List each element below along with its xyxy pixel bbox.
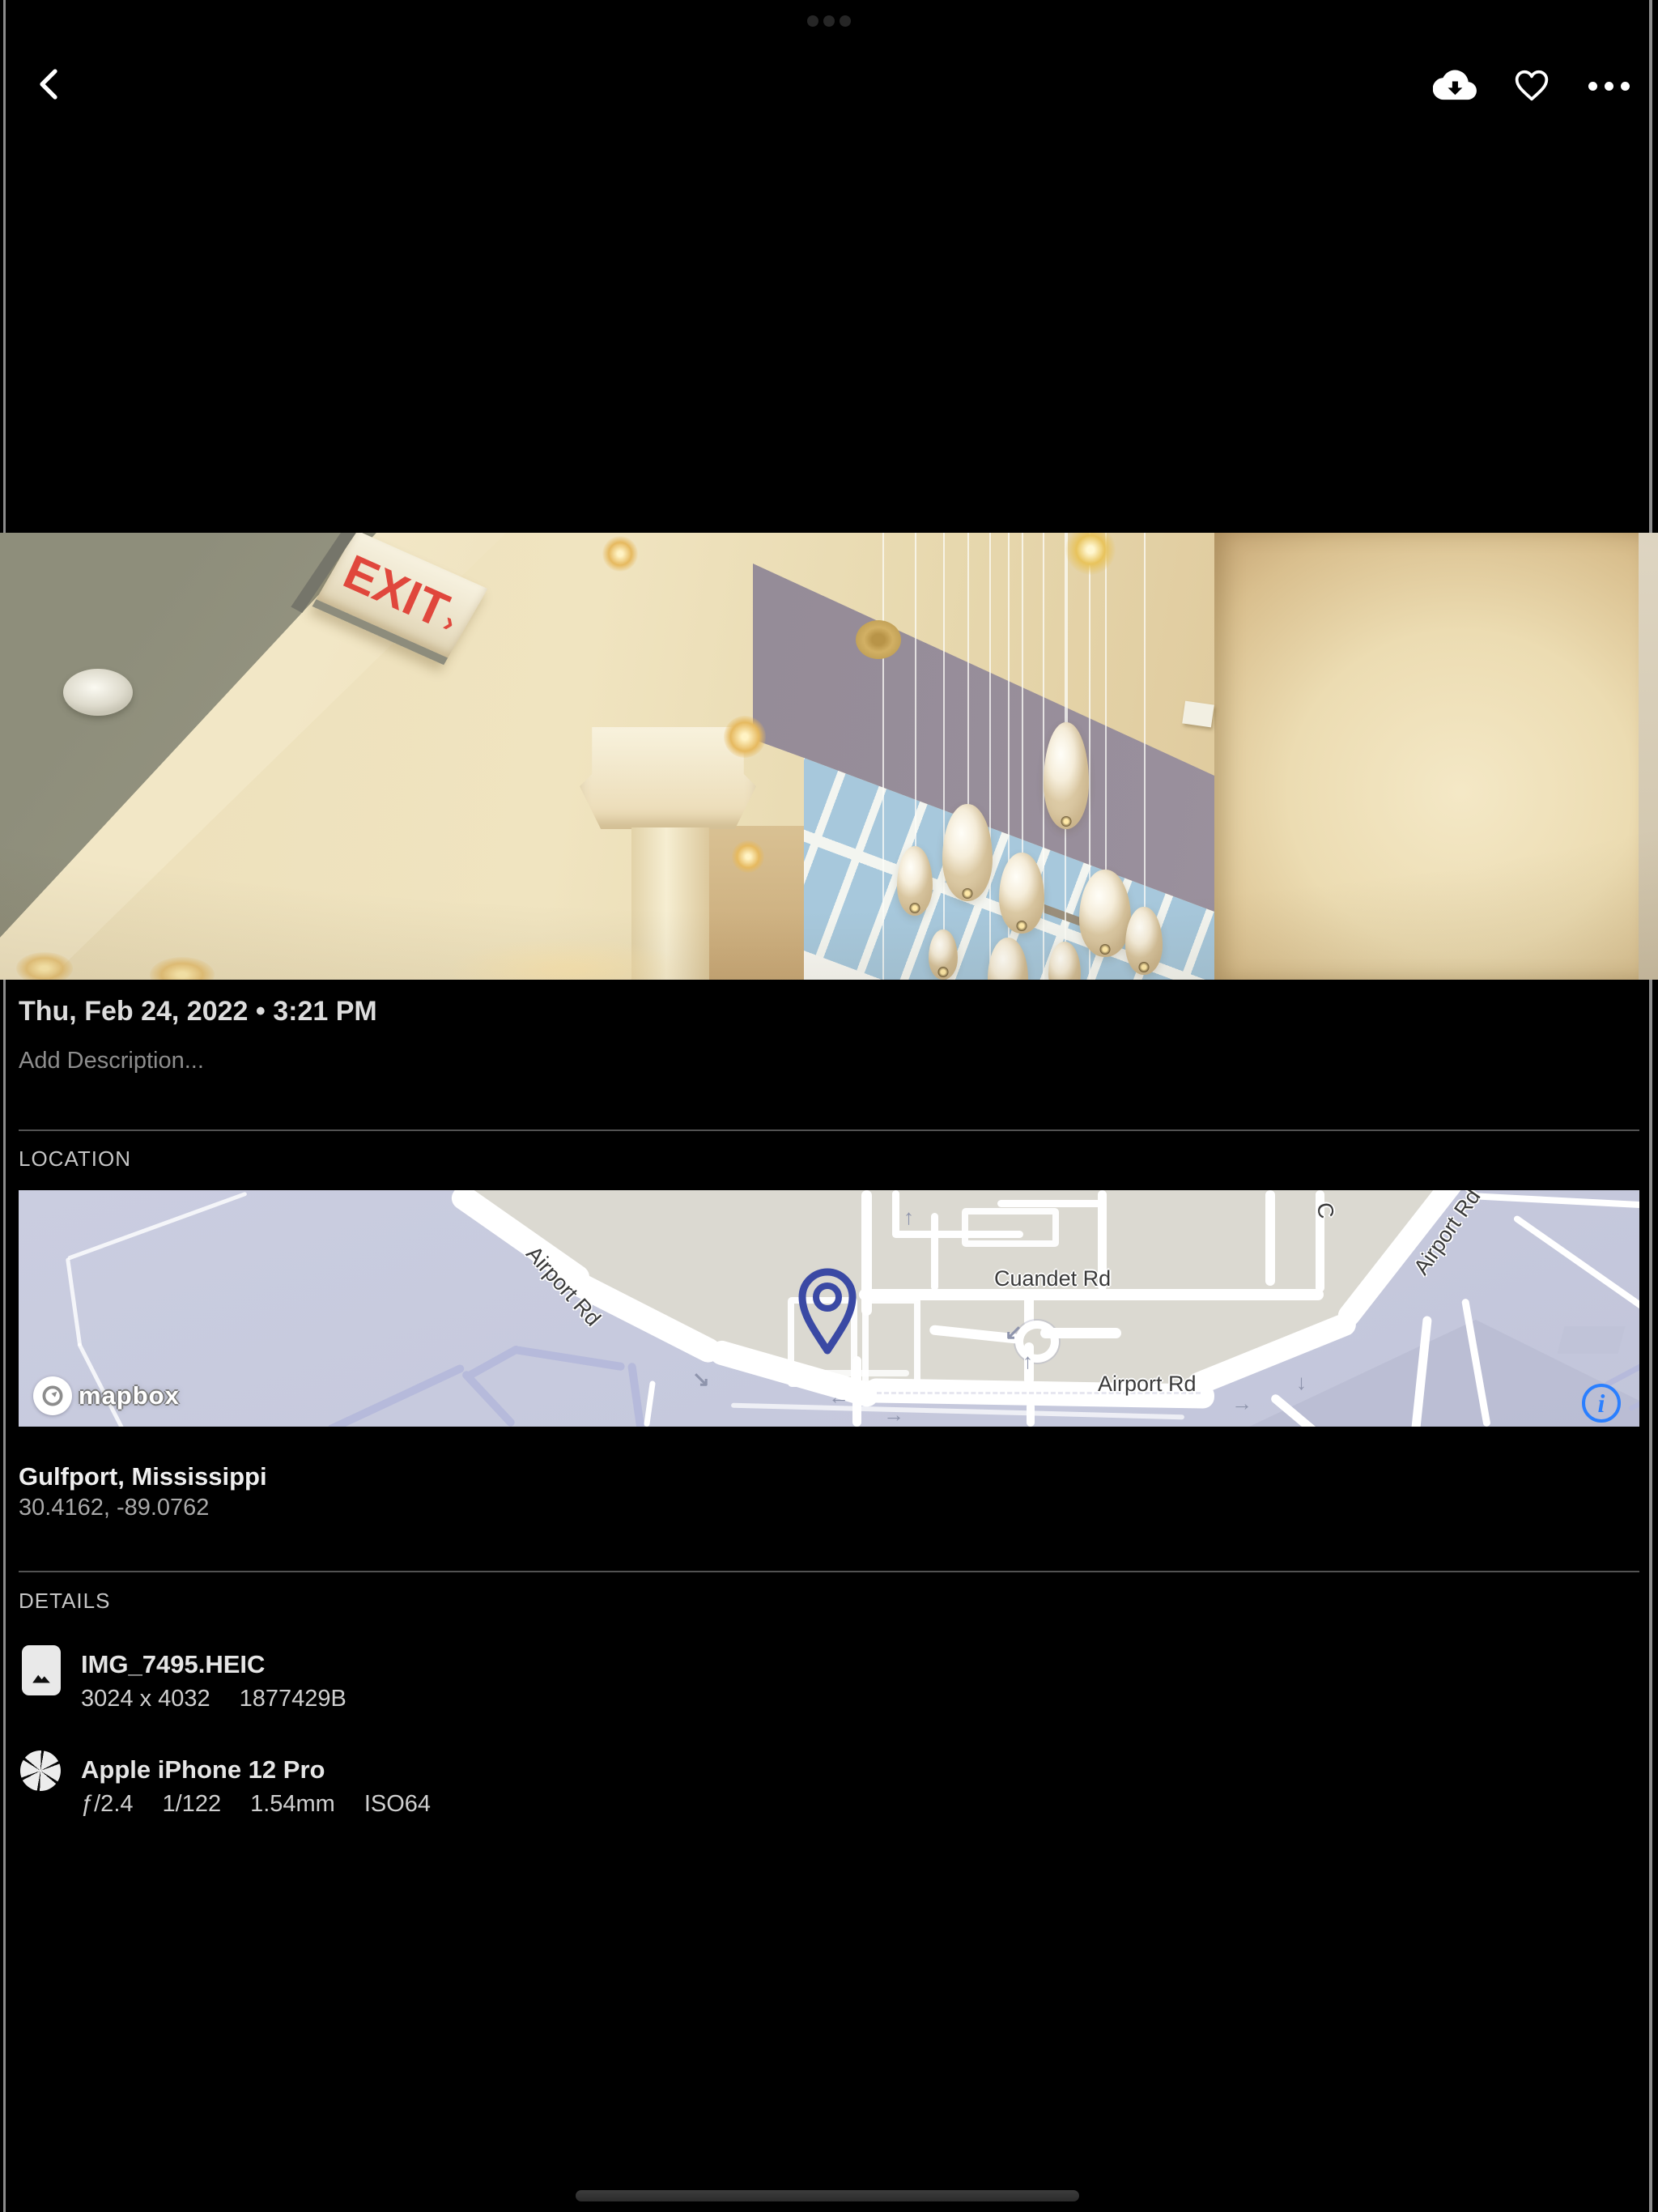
chevron-left-icon	[31, 65, 70, 108]
aperture-icon	[20, 1750, 61, 1791]
camera-iso: ISO64	[364, 1791, 431, 1817]
right-edge-line	[1649, 0, 1652, 2212]
camera-aperture: ƒ/2.4	[81, 1791, 134, 1817]
file-size: 1877429B	[240, 1686, 346, 1712]
location-map[interactable]: ← → ↑ ↓ → ↑ ↘ ↙ Airport Rd Cuandet Rd Ai…	[19, 1190, 1639, 1427]
road-arrow-icon: ↑	[903, 1205, 914, 1230]
photo-image[interactable]: EXIT›	[0, 533, 1658, 980]
divider	[19, 1129, 1639, 1131]
image-file-icon	[22, 1645, 61, 1695]
camera-info: ƒ/2.41/1221.54mmISO64	[81, 1791, 460, 1818]
camera-name: Apple iPhone 12 Pro	[81, 1755, 325, 1784]
road-arrow-icon: ↑	[1022, 1349, 1033, 1374]
description-field[interactable]: Add Description...	[19, 1048, 204, 1074]
mapbox-wordmark: mapbox	[79, 1381, 180, 1410]
road-arrow-icon: ↙	[1005, 1320, 1022, 1345]
download-button[interactable]	[1429, 60, 1481, 112]
camera-shutter: 1/122	[163, 1791, 222, 1817]
divider	[19, 1571, 1639, 1572]
location-place: Gulfport, Mississippi	[19, 1462, 267, 1491]
map-info-button[interactable]: i	[1582, 1384, 1621, 1423]
favorite-button[interactable]	[1506, 60, 1558, 112]
road-arrow-icon: ↓	[1296, 1370, 1307, 1395]
photo-detail-screen: EXIT› Thu, Feb 24, 2022 • 3:21 PM Add De…	[0, 0, 1658, 2212]
ellipsis-icon	[1588, 82, 1630, 91]
file-dimensions: 3024 x 4032	[81, 1686, 210, 1712]
heart-outline-icon	[1511, 66, 1552, 107]
mapbox-attribution[interactable]: mapbox	[33, 1376, 180, 1415]
details-section-label: DETAILS	[19, 1589, 110, 1614]
location-section-label: LOCATION	[19, 1146, 131, 1172]
photo-datetime: Thu, Feb 24, 2022 • 3:21 PM	[19, 996, 377, 1027]
file-info: 3024 x 40321877429B	[81, 1686, 376, 1712]
road-label: Airport Rd	[1098, 1372, 1197, 1397]
road-arrow-icon: →	[883, 1402, 904, 1427]
road-arrow-icon: →	[1231, 1391, 1252, 1416]
file-name: IMG_7495.HEIC	[81, 1650, 265, 1679]
location-coordinates: 30.4162, -89.0762	[19, 1495, 209, 1521]
cloud-download-icon	[1433, 67, 1477, 105]
mapbox-logo-icon	[33, 1376, 72, 1415]
road-arrow-icon: ←	[828, 1385, 849, 1410]
camera-focal-length: 1.54mm	[250, 1791, 335, 1817]
back-button[interactable]	[24, 60, 76, 112]
road-arrow-icon: ↘	[692, 1367, 710, 1392]
multitask-indicator-icon	[807, 15, 851, 27]
photo-vignette	[0, 533, 1658, 980]
left-edge-line	[3, 0, 6, 2212]
home-indicator[interactable]	[576, 2190, 1079, 2201]
more-options-button[interactable]	[1583, 60, 1635, 112]
road-label: Cuandet Rd	[994, 1266, 1111, 1291]
